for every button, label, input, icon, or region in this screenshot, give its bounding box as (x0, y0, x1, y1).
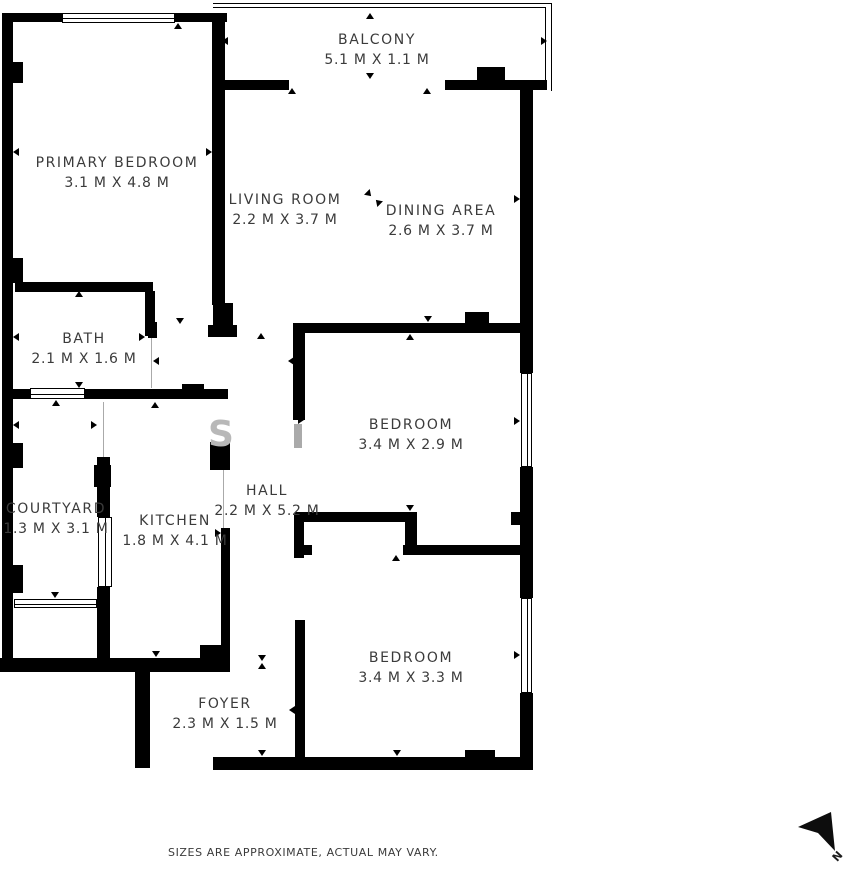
wall (15, 282, 153, 292)
wall (2, 13, 63, 22)
window-pane (15, 604, 96, 605)
floor-plan: BALCONY 5.1 M X 1.1 M PRIMARY BEDROOM 3.… (0, 0, 850, 870)
wall (520, 333, 533, 373)
measure-arrow-icon (514, 651, 520, 659)
window-pane (31, 394, 84, 395)
room-name: HALL (214, 481, 319, 501)
room-dims: 5.1 M X 1.1 M (324, 50, 429, 70)
room-dims: 1.8 M X 4.1 M (122, 531, 227, 551)
room-name: DINING AREA (386, 201, 497, 221)
wall (520, 525, 533, 598)
wall (2, 13, 13, 672)
wall (293, 323, 305, 420)
room-name: BATH (31, 329, 136, 349)
measure-arrow-icon (393, 750, 401, 756)
measure-arrow-icon (219, 195, 225, 203)
measure-arrow-icon (288, 88, 296, 94)
measure-arrow-icon (258, 655, 266, 661)
measure-arrow-icon (75, 382, 83, 388)
wall (465, 750, 495, 758)
window (62, 13, 175, 23)
room-label-bedroom-2: BEDROOM 3.4 M X 3.3 M (358, 648, 463, 688)
measure-arrow-icon (541, 37, 547, 45)
watermark: S (208, 417, 234, 453)
room-dims: 2.2 M X 3.7 M (229, 210, 342, 230)
room-label-primary-bedroom: PRIMARY BEDROOM 3.1 M X 4.8 M (36, 153, 199, 193)
window (14, 599, 97, 608)
window (521, 598, 532, 693)
room-name: BALCONY (324, 30, 429, 50)
room-label-courtyard: COURTYARD 1.3 M X 3.1 M (3, 499, 108, 539)
measure-arrow-icon (151, 402, 159, 408)
measure-arrow-icon (406, 334, 414, 340)
room-dims: 2.2 M X 5.2 M (214, 501, 319, 521)
wall (208, 325, 237, 337)
measure-arrow-icon (13, 333, 19, 341)
room-dims: 3.4 M X 3.3 M (358, 668, 463, 688)
window-pane (63, 18, 174, 19)
wall (465, 312, 489, 323)
wall (200, 645, 230, 659)
measure-arrow-icon (299, 651, 305, 659)
window-pane (527, 599, 528, 692)
room-label-bath: BATH 2.1 M X 1.6 M (31, 329, 136, 369)
wall (293, 323, 532, 333)
measure-arrow-icon (206, 148, 212, 156)
measure-arrow-icon (51, 592, 59, 598)
wall (295, 620, 305, 760)
room-dims: 2.1 M X 1.6 M (31, 349, 136, 369)
measure-arrow-icon (298, 416, 304, 424)
wall (13, 62, 23, 83)
wall (520, 88, 533, 333)
room-name: LIVING ROOM (229, 190, 342, 210)
room-dims: 2.6 M X 3.7 M (386, 221, 497, 241)
disclaimer-text: SIZES ARE APPROXIMATE, ACTUAL MAY VARY. (168, 846, 439, 859)
room-dims: 3.1 M X 4.8 M (36, 173, 199, 193)
wall (97, 587, 110, 660)
room-label-kitchen: KITCHEN 1.8 M X 4.1 M (122, 511, 227, 551)
measure-arrow-icon (514, 417, 520, 425)
room-dims: 3.4 M X 2.9 M (358, 435, 463, 455)
room-label-bedroom-1: BEDROOM 3.4 M X 2.9 M (358, 415, 463, 455)
room-name: PRIMARY BEDROOM (36, 153, 199, 173)
wall (85, 389, 110, 399)
measure-arrow-icon (174, 23, 182, 29)
wall (182, 384, 204, 390)
room-dims: 2.3 M X 1.5 M (172, 714, 277, 734)
measure-arrow-icon (258, 750, 266, 756)
compass: N (792, 806, 850, 868)
wall (13, 443, 23, 468)
measure-arrow-icon (392, 555, 400, 561)
wall (212, 13, 225, 305)
measure-arrow-icon (373, 197, 383, 207)
wall (212, 80, 289, 90)
room-label-living-room: LIVING ROOM 2.2 M X 3.7 M (229, 190, 342, 230)
measure-arrow-icon (366, 73, 374, 79)
wall (94, 465, 111, 487)
window (30, 388, 85, 399)
measure-arrow-icon (288, 357, 294, 365)
measure-arrow-icon (257, 333, 265, 339)
measure-arrow-icon (406, 505, 414, 511)
room-name: FOYER (172, 694, 277, 714)
window (521, 373, 532, 467)
wall (213, 303, 233, 325)
wall (13, 389, 30, 399)
measure-arrow-icon (423, 88, 431, 94)
measure-arrow-icon (514, 195, 520, 203)
measure-arrow-icon (366, 13, 374, 19)
room-name: BEDROOM (358, 415, 463, 435)
room-name: BEDROOM (358, 648, 463, 668)
measure-arrow-icon (144, 706, 150, 714)
wall (213, 757, 533, 770)
measure-arrow-icon (52, 400, 60, 406)
measure-arrow-icon (152, 651, 160, 657)
wall (0, 658, 230, 672)
window-pane (527, 374, 528, 466)
room-name: COURTYARD (3, 499, 108, 519)
wall (520, 467, 533, 513)
room-name: KITCHEN (122, 511, 227, 531)
wall (477, 67, 505, 80)
measure-arrow-icon (13, 148, 19, 156)
wall (511, 512, 533, 525)
measure-arrow-icon (176, 318, 184, 324)
room-dims: 1.3 M X 3.1 M (3, 519, 108, 539)
measure-arrow-icon (139, 333, 145, 341)
room-label-dining-area: DINING AREA 2.6 M X 3.7 M (386, 201, 497, 241)
measure-arrow-icon (289, 706, 295, 714)
wall (148, 322, 157, 338)
door-line (151, 338, 152, 388)
door-line (103, 402, 104, 457)
wall (304, 545, 312, 555)
wall (13, 565, 23, 593)
measure-arrow-icon (258, 663, 266, 669)
measure-arrow-icon (222, 37, 228, 45)
measure-arrow-icon (13, 421, 19, 429)
wall (108, 389, 228, 399)
doorway-marker (294, 424, 302, 448)
measure-arrow-icon (424, 316, 432, 322)
wall (13, 258, 23, 283)
measure-arrow-icon (364, 189, 374, 199)
wall (403, 545, 533, 555)
measure-arrow-icon (75, 291, 83, 297)
measure-arrow-icon (153, 357, 159, 365)
room-label-hall: HALL 2.2 M X 5.2 M (214, 481, 319, 521)
measure-arrow-icon (91, 421, 97, 429)
room-label-balcony: BALCONY 5.1 M X 1.1 M (324, 30, 429, 70)
room-label-foyer: FOYER 2.3 M X 1.5 M (172, 694, 277, 734)
